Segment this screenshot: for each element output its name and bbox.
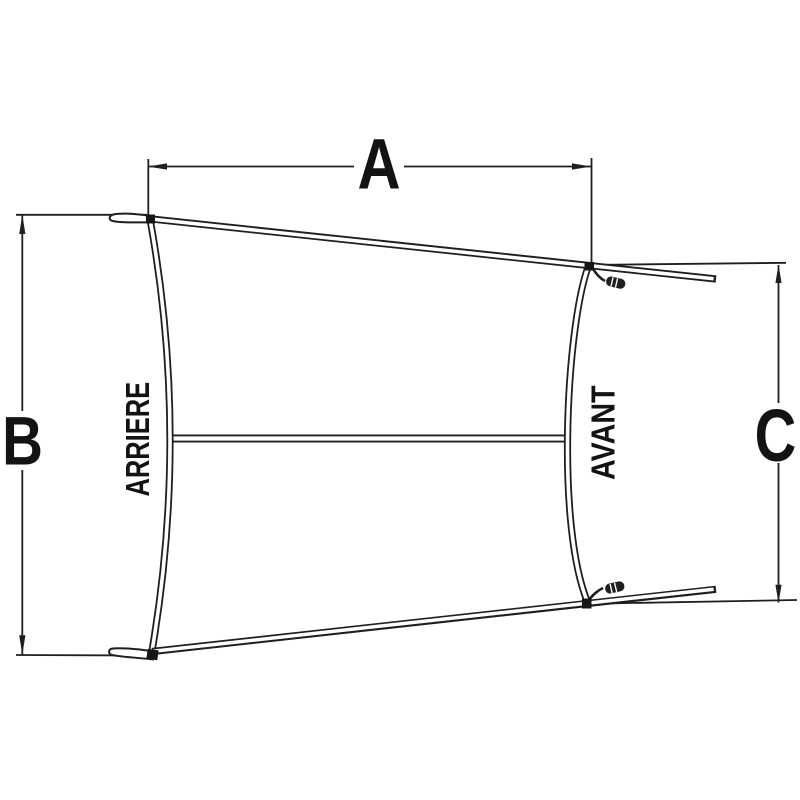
svg-text:AVANT: AVANT [585, 385, 622, 480]
svg-text:B: B [2, 403, 43, 480]
svg-text:C: C [755, 395, 797, 478]
svg-text:ARRIERE: ARRIERE [119, 382, 156, 497]
svg-text:A: A [357, 125, 400, 204]
